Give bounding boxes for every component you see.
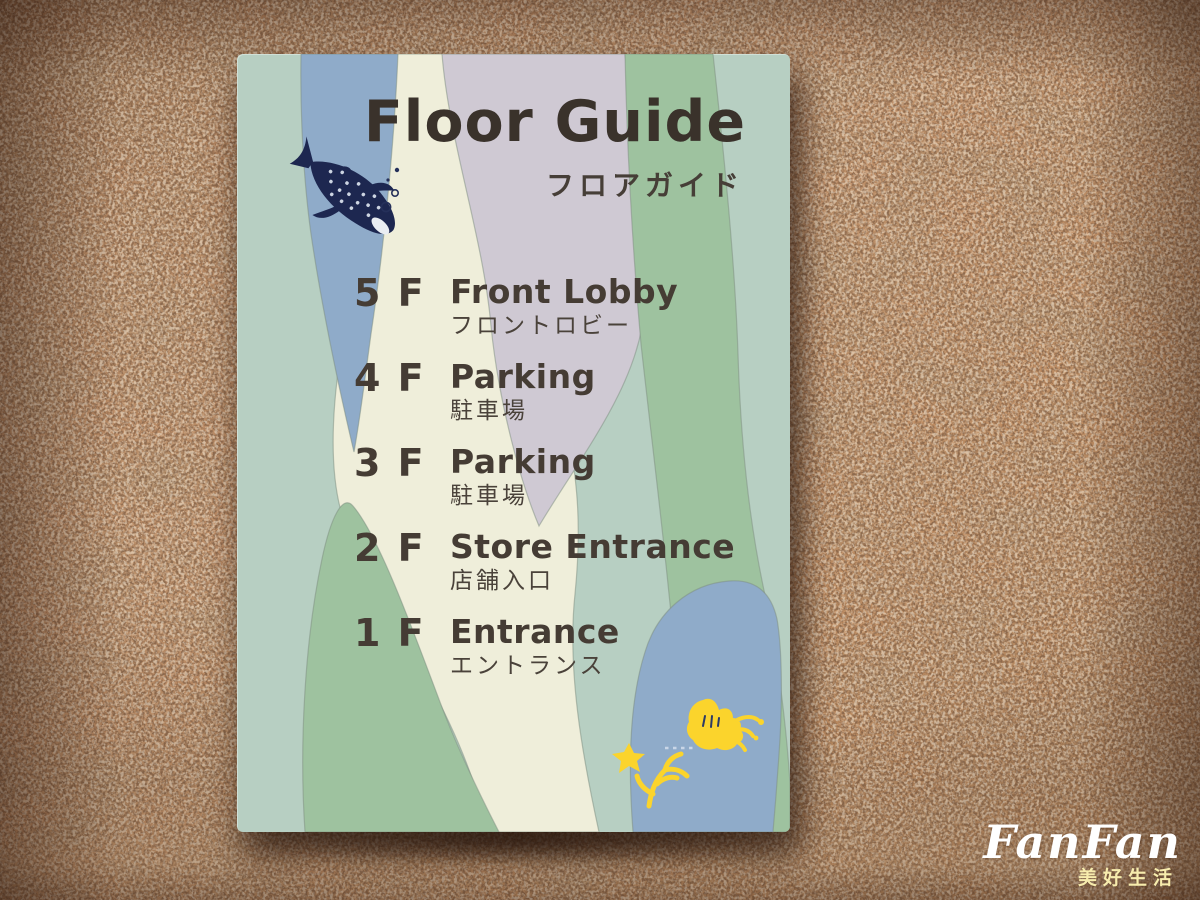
floor-number: 2 F: [354, 528, 428, 568]
floor-number: 4 F: [354, 358, 428, 398]
floor-label-en: Parking: [450, 443, 596, 481]
floor-label-en: Store Entrance: [450, 528, 735, 566]
floor-number: 1 F: [354, 613, 428, 653]
floor-label-jp: 店舗入口: [450, 568, 735, 594]
floor-label-jp: エントランス: [450, 653, 620, 679]
sign-text-layer: Floor Guide フロアガイド 5 F Front Lobby フロントロ…: [237, 54, 790, 832]
floor-number: 5 F: [354, 273, 428, 313]
floor-label-en: Parking: [450, 358, 596, 396]
floor-label-en: Front Lobby: [450, 273, 678, 311]
floor-guide-sign: Floor Guide フロアガイド 5 F Front Lobby フロントロ…: [237, 54, 790, 832]
watermark-name: FanFan: [983, 819, 1182, 865]
floor-label-jp: 駐車場: [450, 483, 596, 509]
sign-subtitle-jp: フロアガイド: [546, 164, 744, 204]
photo-scene: Floor Guide フロアガイド 5 F Front Lobby フロントロ…: [0, 0, 1200, 900]
floor-label-jp: フロントロビー: [450, 313, 678, 339]
watermark: FanFan 美好生活: [983, 819, 1182, 888]
watermark-tagline: 美好生活: [983, 869, 1178, 888]
sign-title: Floor Guide: [357, 94, 746, 151]
floor-row-4f: 4 F Parking 駐車場: [354, 358, 770, 443]
floor-row-5f: 5 F Front Lobby フロントロビー: [354, 273, 770, 358]
floor-label-jp: 駐車場: [450, 398, 596, 424]
floor-row-2f: 2 F Store Entrance 店舗入口: [354, 528, 770, 613]
floor-row-1f: 1 F Entrance エントランス: [354, 613, 770, 698]
floor-row-3f: 3 F Parking 駐車場: [354, 443, 770, 528]
floor-list: 5 F Front Lobby フロントロビー 4 F Parking 駐車場 …: [354, 273, 770, 698]
floor-number: 3 F: [354, 443, 428, 483]
floor-label-en: Entrance: [450, 613, 620, 651]
